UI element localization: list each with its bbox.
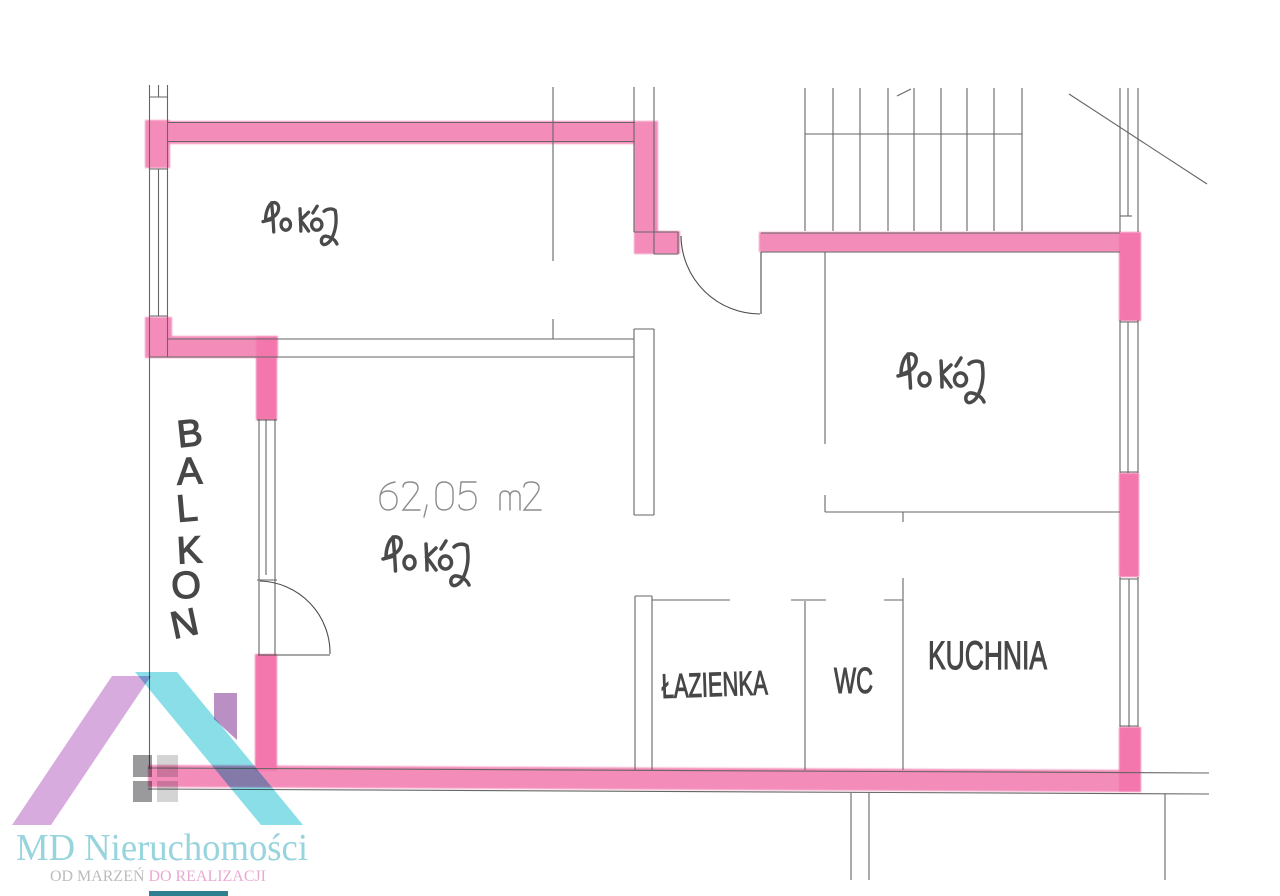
svg-text:KUCHNIA: KUCHNIA — [928, 634, 1047, 678]
svg-text:OD MARZEŃ DO REALIZACJI: OD MARZEŃ DO REALIZACJI — [50, 866, 266, 885]
svg-text:MD Nieruchomości: MD Nieruchomości — [16, 827, 308, 869]
svg-text:L: L — [175, 487, 200, 531]
svg-text:ŁAZIENKA: ŁAZIENKA — [661, 664, 768, 706]
svg-text:O: O — [170, 564, 202, 608]
svg-text:WC: WC — [834, 660, 873, 701]
